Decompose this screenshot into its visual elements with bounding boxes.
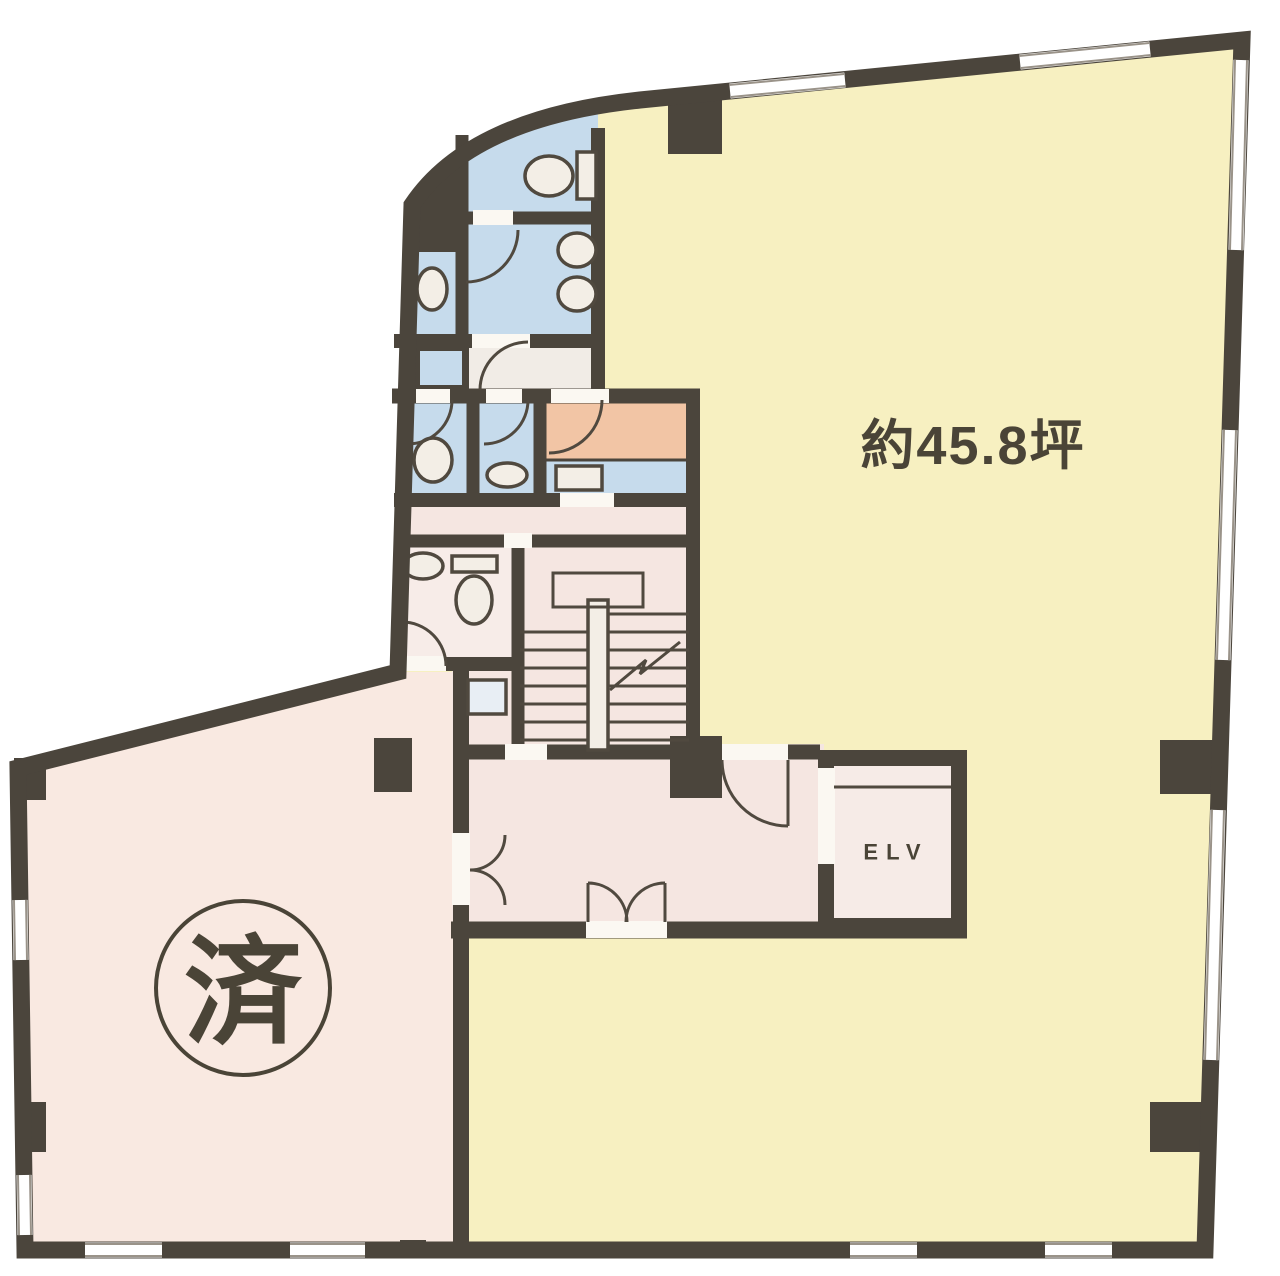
gap-hall-double-door: [586, 921, 667, 938]
kitchenette-sink: [556, 466, 602, 490]
stamp-label: 済: [184, 928, 303, 1060]
floor-plan-page: 約45.8坪 ELV 済: [0, 0, 1280, 1276]
sink-wc-right: [487, 463, 527, 487]
gap-lavatory: [402, 656, 446, 671]
pillar-left-mid: [374, 738, 412, 792]
basin-2: [558, 277, 596, 311]
gap-hall-main: [720, 744, 788, 760]
gap-wc-top: [473, 210, 513, 225]
elevator-hall: [452, 744, 824, 932]
area-label: 約45.8坪: [860, 416, 1085, 476]
room-fills: [18, 40, 1242, 1250]
gap-wc-left: [416, 389, 450, 403]
floor-plan: 約45.8坪 ELV 済: [0, 0, 1280, 1276]
gap-stair-hall: [505, 744, 547, 760]
gap-service-room: [551, 389, 609, 403]
shaft-square-border3: [462, 342, 469, 392]
toilet-left-small: [417, 268, 447, 310]
elevator-label: ELV: [863, 840, 928, 865]
gap-elevator-door: [818, 768, 835, 864]
stair-rail: [588, 600, 608, 750]
gap-wc-right: [486, 389, 522, 403]
toilet-tank-top: [577, 152, 596, 199]
wc-lobby: [462, 342, 598, 394]
basin-1: [558, 233, 596, 267]
gap-kitchenette: [560, 493, 614, 507]
lavatory-tank: [452, 556, 497, 572]
toilet-wc-left: [414, 438, 452, 482]
shaft-square-inner: [418, 349, 462, 387]
gap-left-room-door: [452, 833, 470, 905]
gap-corridor-stair: [504, 533, 532, 548]
pipe-shaft-box: [468, 680, 506, 714]
lavatory-toilet: [456, 576, 492, 624]
pillar-hall-block: [670, 736, 722, 798]
toilet-bowl-top: [525, 156, 573, 196]
